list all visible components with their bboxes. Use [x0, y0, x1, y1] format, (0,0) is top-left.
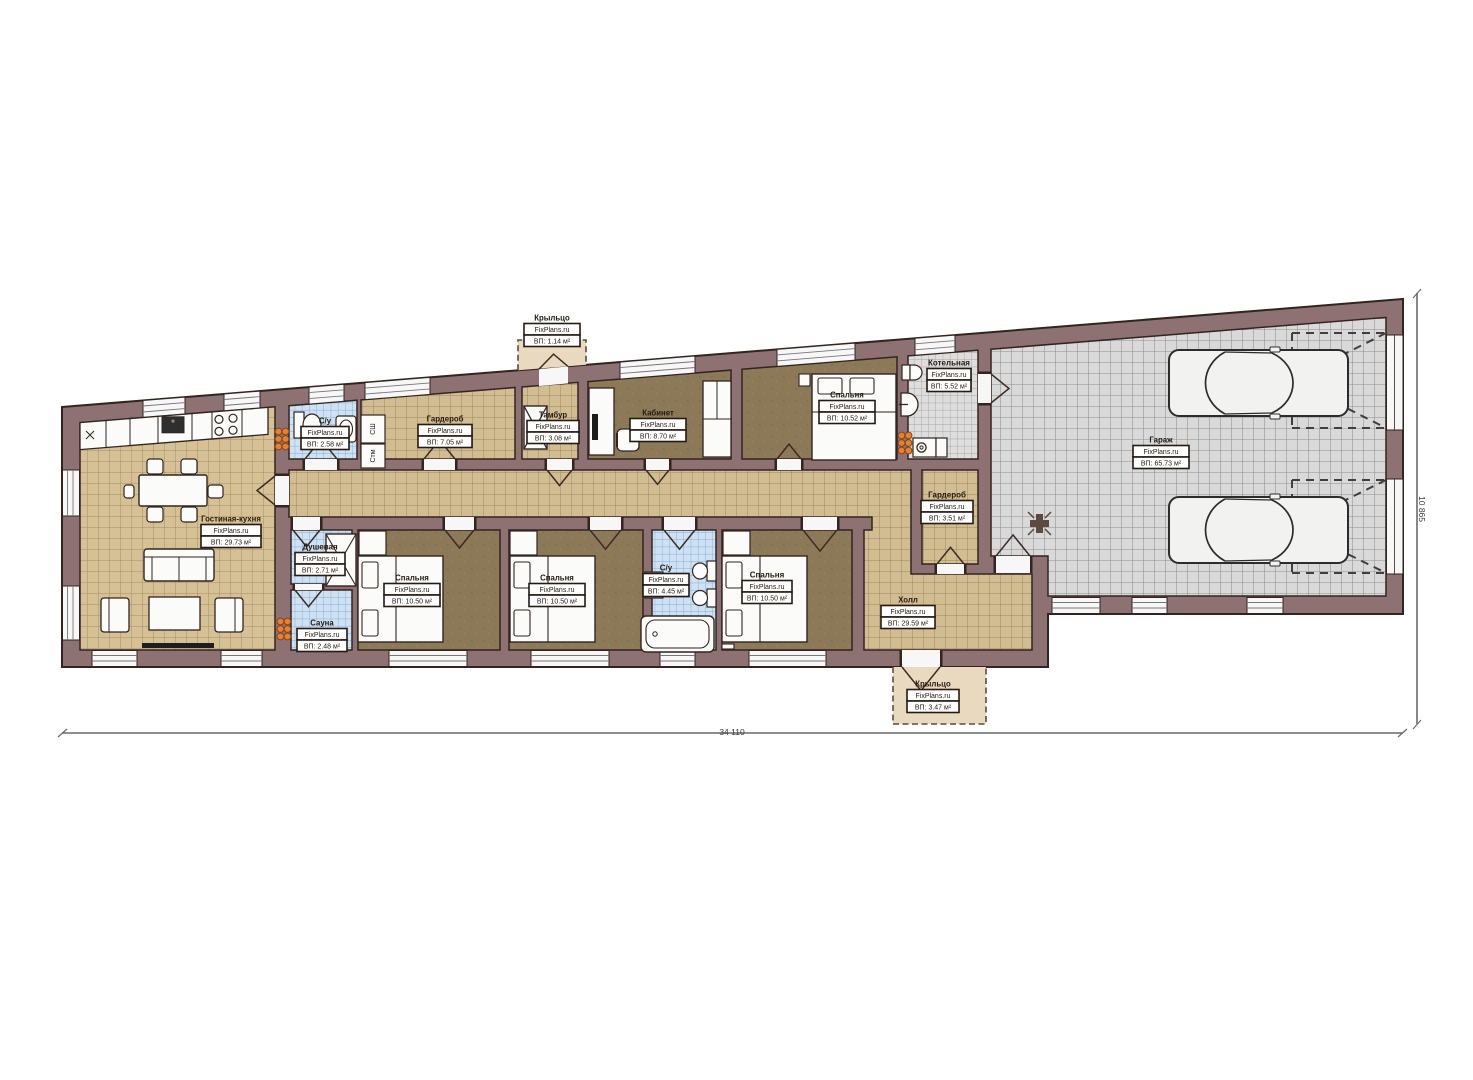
svg-text:FixPlans.ru: FixPlans.ru — [539, 587, 574, 594]
svg-text:FixPlans.ru: FixPlans.ru — [648, 577, 683, 584]
svg-text:FixPlans.ru: FixPlans.ru — [534, 327, 569, 334]
svg-text:ВП: 2.48 м²: ВП: 2.48 м² — [304, 644, 341, 651]
svg-text:ВП: 29.73 м²: ВП: 29.73 м² — [211, 540, 252, 547]
svg-text:ВП: 4.45 м²: ВП: 4.45 м² — [648, 589, 685, 596]
svg-text:СШ: СШ — [370, 423, 377, 434]
svg-text:Кабинет: Кабинет — [642, 409, 674, 418]
svg-text:Холл: Холл — [898, 596, 918, 605]
svg-text:Сауна: Сауна — [310, 619, 334, 628]
svg-text:FixPlans.ru: FixPlans.ru — [394, 587, 429, 594]
svg-text:ВП: 10.50 м²: ВП: 10.50 м² — [537, 599, 578, 606]
svg-text:Спальня: Спальня — [395, 574, 429, 583]
svg-text:Гостиная-кухня: Гостиная-кухня — [201, 515, 261, 524]
svg-text:FixPlans.ru: FixPlans.ru — [890, 609, 925, 616]
svg-text:ВП: 10.50 м²: ВП: 10.50 м² — [392, 599, 433, 606]
svg-text:FixPlans.ru: FixPlans.ru — [302, 556, 337, 563]
svg-text:ВП: 10.50 м²: ВП: 10.50 м² — [747, 596, 788, 603]
svg-text:FixPlans.ru: FixPlans.ru — [749, 584, 784, 591]
svg-text:ВП: 3.08 м²: ВП: 3.08 м² — [535, 436, 572, 443]
svg-text:Тамбур: Тамбур — [539, 411, 568, 420]
svg-text:FixPlans.ru: FixPlans.ru — [213, 528, 248, 535]
svg-text:FixPlans.ru: FixPlans.ru — [1143, 449, 1178, 456]
svg-text:Душевая: Душевая — [302, 543, 338, 552]
svg-text:Котельная: Котельная — [928, 359, 970, 368]
svg-text:FixPlans.ru: FixPlans.ru — [929, 504, 964, 511]
svg-text:ВП: 2.58 м²: ВП: 2.58 м² — [307, 442, 344, 449]
svg-text:Крыльцо: Крыльцо — [534, 314, 570, 323]
svg-text:FixPlans.ru: FixPlans.ru — [915, 693, 950, 700]
svg-text:ВП: 7.05 м²: ВП: 7.05 м² — [427, 440, 464, 447]
svg-text:ВП: 29.59 м²: ВП: 29.59 м² — [888, 621, 929, 628]
svg-text:FixPlans.ru: FixPlans.ru — [931, 372, 966, 379]
svg-text:FixPlans.ru: FixPlans.ru — [640, 422, 675, 429]
svg-text:FixPlans.ru: FixPlans.ru — [535, 424, 570, 431]
svg-text:FixPlans.ru: FixPlans.ru — [304, 632, 339, 639]
svg-text:Спальня: Спальня — [750, 571, 785, 580]
svg-text:Стм: Стм — [370, 449, 377, 462]
svg-text:ВП: 65.73 м²: ВП: 65.73 м² — [1141, 461, 1182, 468]
svg-text:С/у: С/у — [319, 417, 332, 426]
svg-text:Крыльцо: Крыльцо — [915, 680, 951, 689]
svg-text:Спальня: Спальня — [540, 574, 574, 583]
svg-text:34 110: 34 110 — [719, 727, 745, 737]
svg-text:FixPlans.ru: FixPlans.ru — [829, 404, 864, 411]
svg-text:Гардероб: Гардероб — [928, 491, 966, 500]
svg-text:ВП: 3.51 м²: ВП: 3.51 м² — [929, 516, 966, 523]
svg-text:ВП: 5.52 м²: ВП: 5.52 м² — [931, 384, 968, 391]
svg-text:ВП: 8.70 м²: ВП: 8.70 м² — [640, 434, 677, 441]
svg-text:Спальня: Спальня — [830, 391, 864, 400]
svg-text:ВП: 3.47 м²: ВП: 3.47 м² — [915, 705, 952, 712]
svg-text:ВП: 1.14 м²: ВП: 1.14 м² — [534, 339, 571, 346]
svg-text:FixPlans.ru: FixPlans.ru — [427, 428, 462, 435]
svg-text:ВП: 2.71 м²: ВП: 2.71 м² — [302, 568, 339, 575]
svg-text:ВП: 10.52 м²: ВП: 10.52 м² — [827, 416, 868, 423]
svg-text:Гардероб: Гардероб — [427, 415, 464, 424]
svg-text:С/у: С/у — [660, 564, 673, 573]
svg-text:Гараж: Гараж — [1149, 436, 1173, 445]
svg-text:FixPlans.ru: FixPlans.ru — [307, 430, 342, 437]
svg-text:10 865: 10 865 — [1417, 496, 1427, 522]
